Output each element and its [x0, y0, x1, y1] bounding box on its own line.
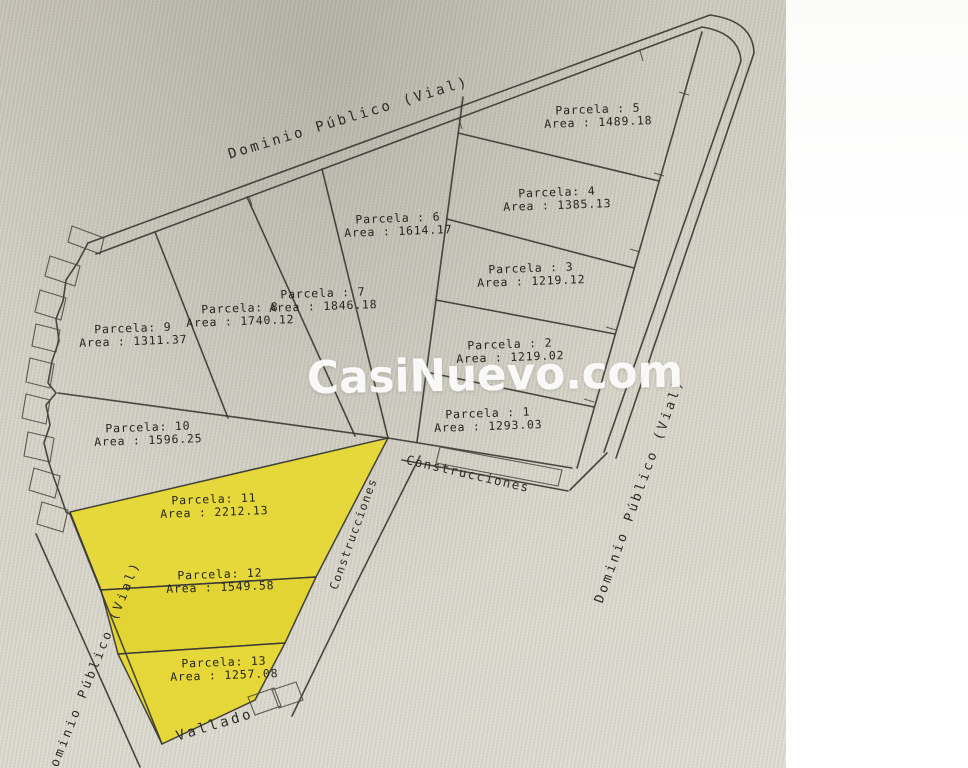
parcel-11-label: Parcela: 11 Area : 2212.13 — [160, 490, 269, 521]
casinuevo-watermark: CasiNuevo.com — [305, 345, 684, 405]
parcel-10-label: Parcela: 10 Area : 1596.25 — [94, 418, 203, 449]
parcel-8-area: Area : 1740.12 — [186, 312, 295, 330]
parcel-5-area: Area : 1489.18 — [544, 113, 653, 131]
white-margin — [786, 0, 968, 768]
parcel-6-area: Area : 1614.17 — [344, 222, 453, 240]
parcel-6-label: Parcela : 6 Area : 1614.17 — [344, 209, 453, 240]
parcel-9-label: Parcela: 9 Area : 1311.37 — [79, 319, 188, 350]
parcel-10-area: Area : 1596.25 — [94, 431, 203, 449]
plan-photo-screenshot: Dominio Público (Vial) Dominio Público (… — [0, 0, 968, 768]
parcel-13-label: Parcela: 13 Area : 1257.08 — [170, 653, 279, 684]
parcel-5-label: Parcela : 5 Area : 1489.18 — [544, 100, 653, 131]
parcel-9-area: Area : 1311.37 — [79, 332, 188, 350]
parcel-7-label: Parcela : 7 Area : 1846.18 — [269, 284, 378, 315]
parcel-4-label: Parcela: 4 Area : 1385.13 — [503, 183, 612, 214]
parcel-3-area: Area : 1219.12 — [477, 272, 586, 290]
parcel-12-label: Parcela: 12 Area : 1549.58 — [166, 565, 275, 596]
parcels-right-boundary-line — [577, 32, 702, 468]
parcel-4-area: Area : 1385.13 — [503, 196, 612, 214]
parcel-8-label: Parcela: 8 Area : 1740.12 — [186, 299, 295, 330]
parcel-1-area: Area : 1293.03 — [434, 417, 543, 435]
parcel-3-label: Parcela : 3 Area : 1219.12 — [477, 259, 586, 290]
parcel-1-label: Parcela : 1 Area : 1293.03 — [434, 404, 543, 435]
road-top-label: Dominio Público (Vial) — [226, 74, 471, 163]
west-edge-building-rects — [22, 226, 104, 532]
road-right-label: Dominio Público (Vial) — [592, 376, 688, 605]
